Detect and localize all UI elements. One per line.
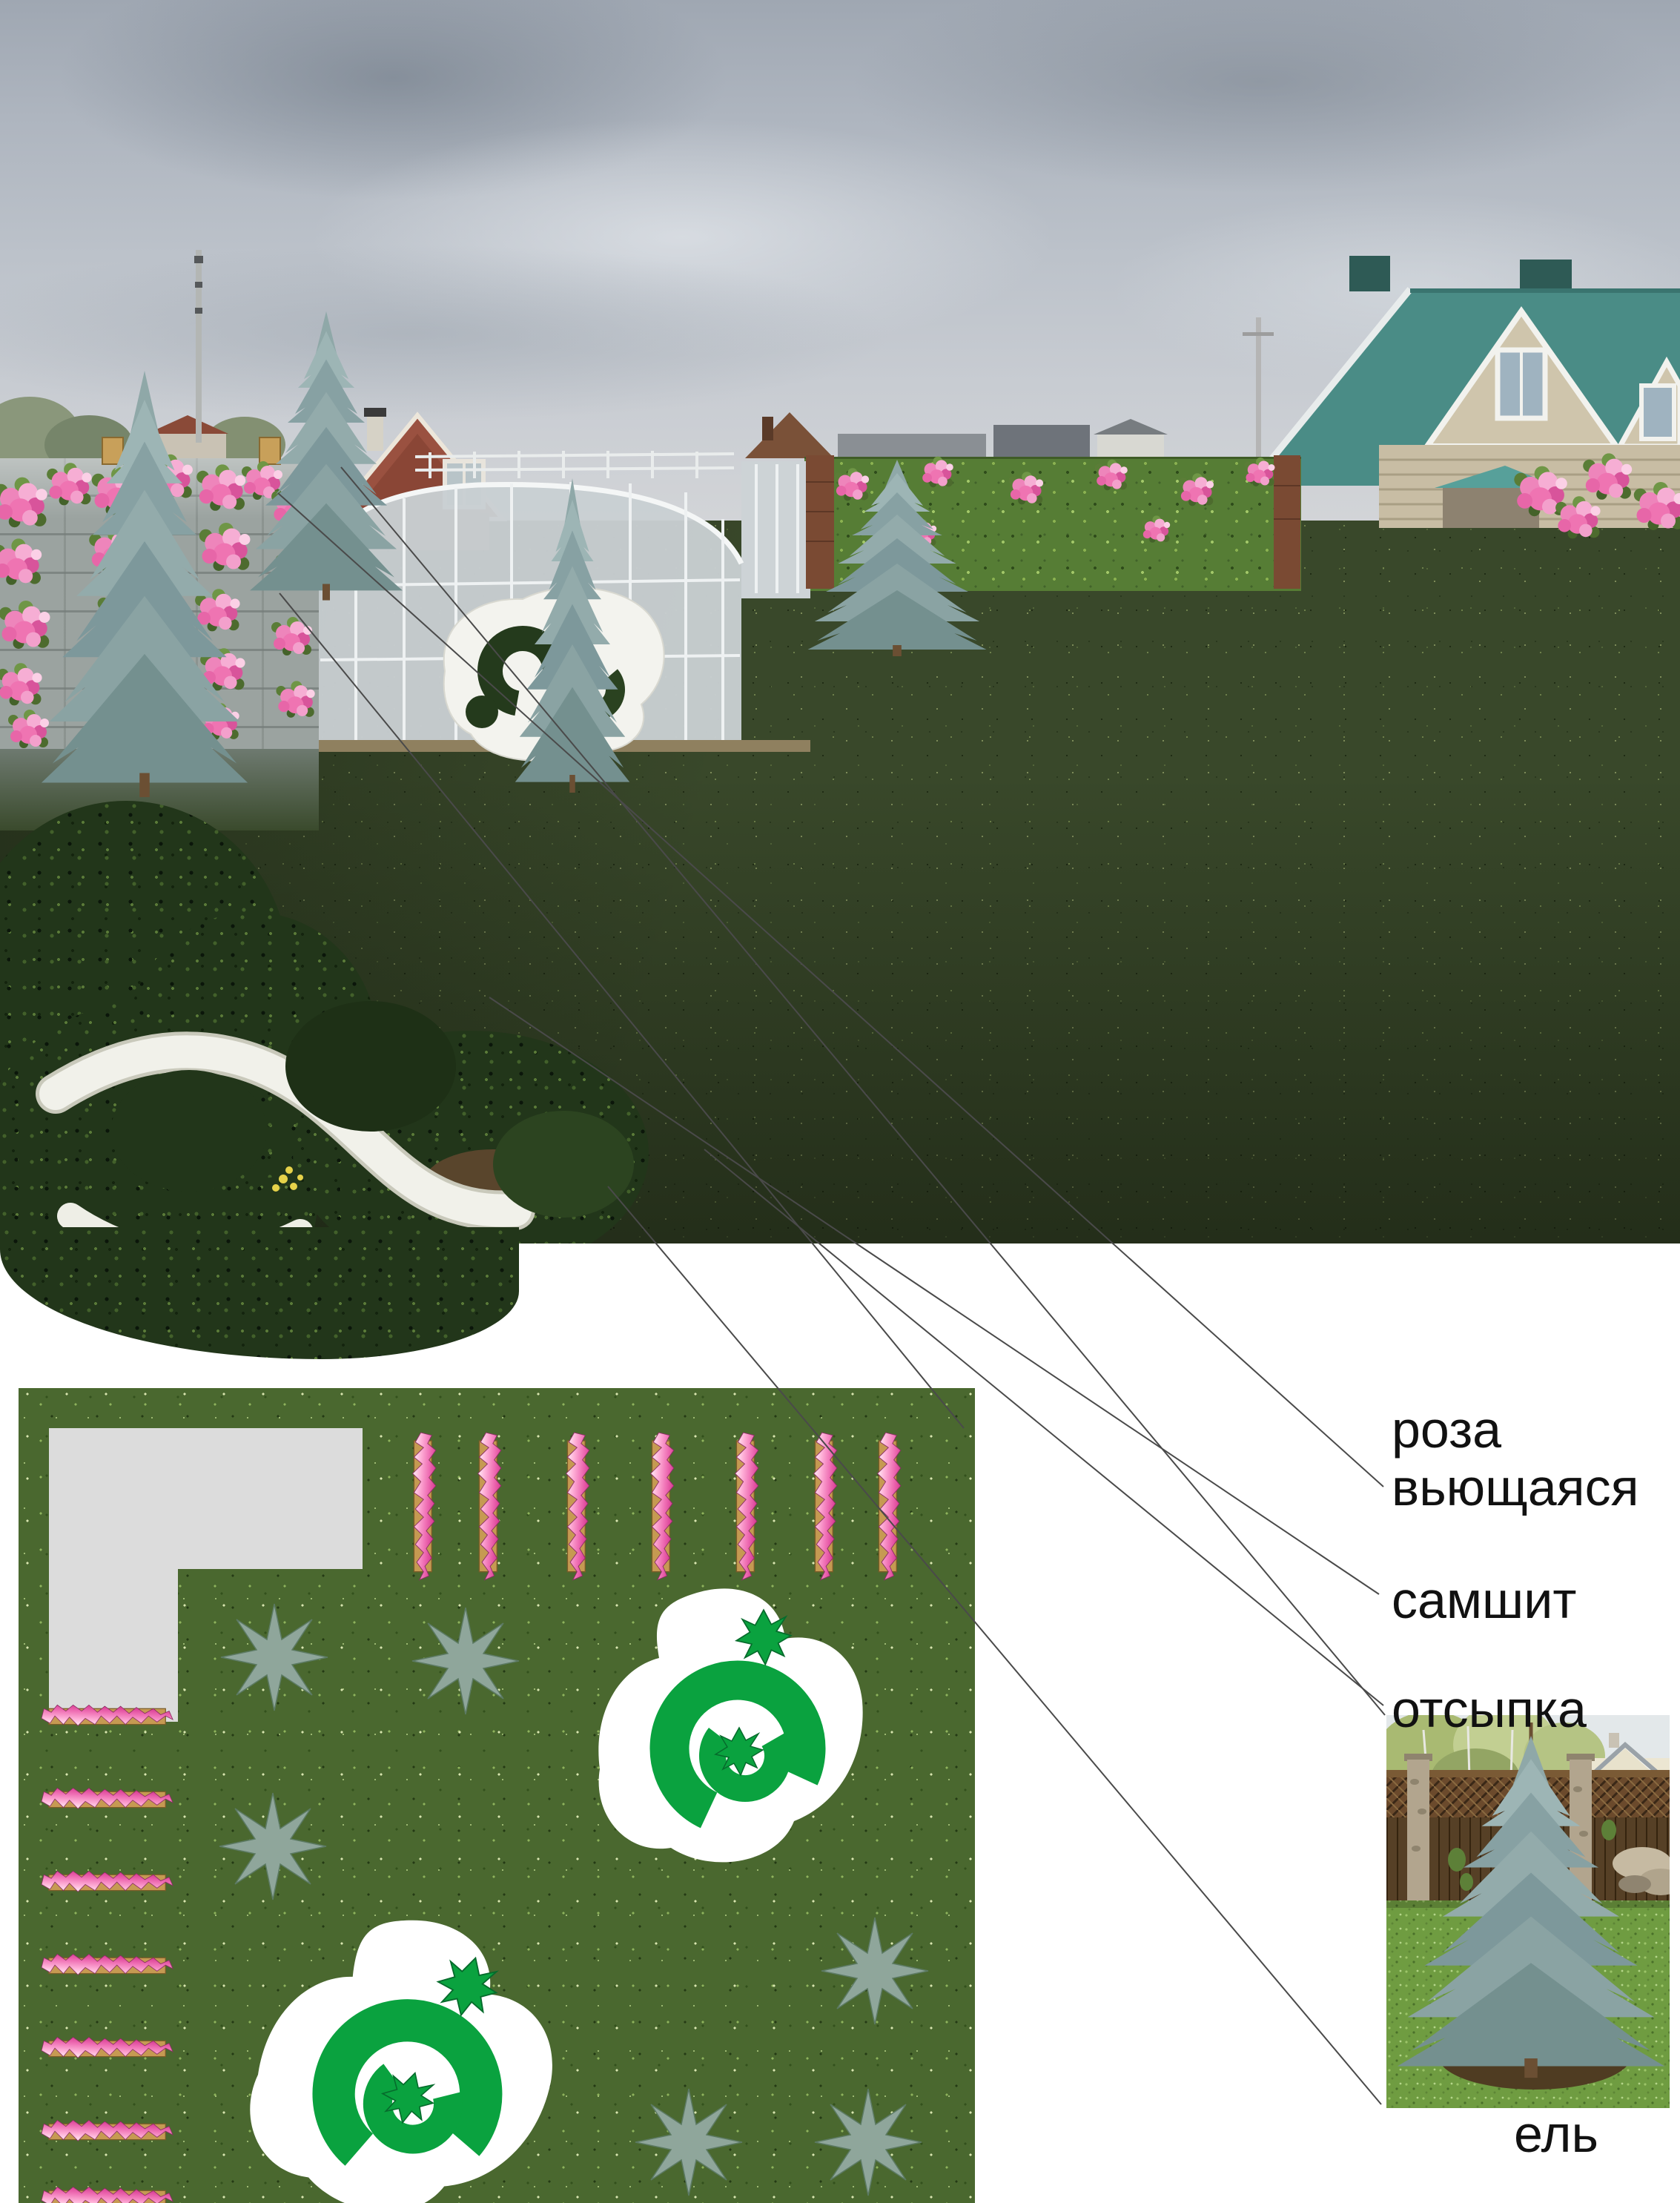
spruce-star-symbol [821,1918,928,2024]
spruce-photo-scene [1386,1715,1670,2108]
label-gravel-text: отсыпка [1392,1680,1587,1738]
rose-symbol-vertical [735,1433,758,1580]
boxwood-composition-a [598,1588,862,1862]
label-climbing-rose-line1: роза [1392,1401,1639,1459]
rose-symbol-horizontal [42,1788,173,1809]
plan-view [19,1388,975,2203]
rose-symbol-vertical [878,1433,901,1580]
foreground-gravel-path [0,0,1680,1243]
building-footprint [49,1428,363,1722]
left-rose-symbols-layer [42,1705,173,2203]
label-spruce-text: ель [1514,2105,1598,2163]
rose-symbol-vertical [814,1433,837,1580]
top-rose-symbols-layer [413,1433,901,1580]
spruce-star-symbol [219,1793,326,1900]
spruce-star-symbol [815,2089,922,2196]
label-climbing-rose: роза вьющаяся [1392,1401,1639,1516]
rose-symbol-horizontal [42,1871,173,1892]
spruce-star-symbol [221,1604,328,1711]
rose-symbol-horizontal [42,2120,173,2141]
rose-symbol-vertical [651,1433,674,1580]
yellow-flowers [272,1166,303,1192]
label-boxwood: самшит [1392,1571,1576,1629]
rose-symbol-horizontal [42,1954,173,1975]
spruce-star-symbol [635,2089,742,2196]
label-spruce: ель [1514,2105,1598,2163]
label-climbing-rose-line2: вьющаяся [1392,1459,1639,1516]
spruce-star-symbol [412,1608,519,1714]
label-boxwood-text: самшит [1392,1571,1576,1629]
plan-symbols [19,1388,975,2203]
boxwood-composition-b [229,1886,585,2203]
rose-symbol-vertical [413,1433,436,1580]
page-canvas: роза вьющаяся самшит отсыпка ель [0,0,1680,2203]
spruce-photo [1386,1715,1670,2108]
rose-symbol-horizontal [42,2037,173,2058]
stone-pile [1613,1847,1670,1895]
photo-montage [0,0,1680,1243]
label-gravel: отсыпка [1392,1680,1587,1738]
rose-symbol-vertical [566,1433,589,1580]
rose-symbol-horizontal [42,2187,173,2203]
boxwood-compositions-layer [229,1588,863,2203]
hedge-extension-below-photo [0,1227,519,1359]
rose-symbol-vertical [478,1433,501,1580]
